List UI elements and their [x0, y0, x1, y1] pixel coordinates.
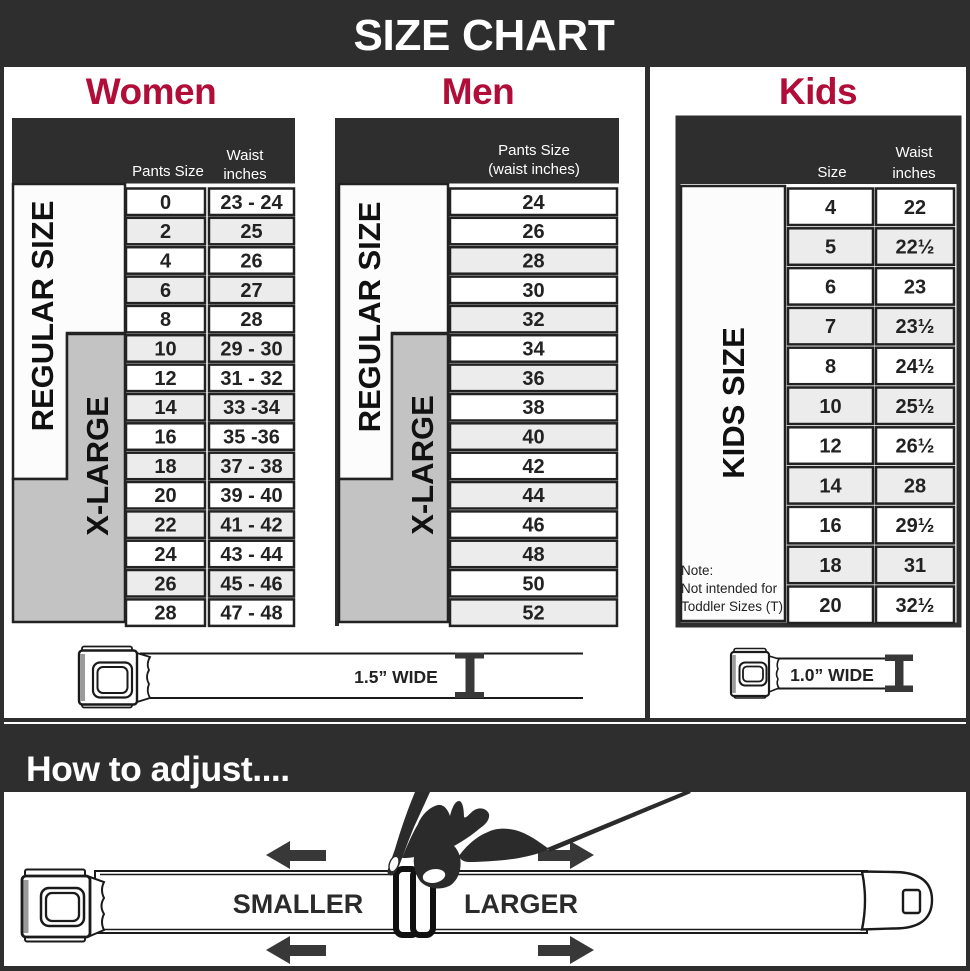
svg-text:24: 24 [154, 544, 177, 566]
svg-text:26: 26 [240, 250, 262, 272]
svg-text:42: 42 [522, 456, 544, 478]
svg-text:24½: 24½ [896, 356, 935, 378]
svg-text:26½: 26½ [896, 436, 935, 458]
svg-text:X-LARGE: X-LARGE [405, 395, 440, 535]
svg-text:39 - 40: 39 - 40 [220, 485, 282, 507]
svg-text:18: 18 [819, 555, 841, 577]
svg-text:23½: 23½ [896, 316, 935, 338]
svg-text:Pants Size: Pants Size [498, 142, 570, 159]
svg-text:4: 4 [160, 250, 172, 272]
svg-text:29 - 30: 29 - 30 [220, 339, 282, 361]
svg-text:22: 22 [904, 197, 926, 219]
svg-text:KIDS SIZE: KIDS SIZE [716, 327, 751, 479]
svg-text:14: 14 [819, 475, 842, 497]
svg-text:24: 24 [522, 192, 545, 214]
svg-text:33 -34: 33 -34 [223, 397, 281, 419]
svg-text:20: 20 [154, 485, 176, 507]
svg-text:38: 38 [522, 397, 544, 419]
svg-text:12: 12 [819, 436, 841, 458]
svg-text:23: 23 [904, 276, 926, 298]
svg-text:23 - 24: 23 - 24 [220, 192, 283, 214]
svg-text:32: 32 [522, 309, 544, 331]
svg-text:Size: Size [817, 164, 846, 181]
svg-text:20: 20 [819, 595, 841, 617]
svg-text:28: 28 [240, 309, 262, 331]
svg-text:14: 14 [154, 397, 177, 419]
svg-text:43 - 44: 43 - 44 [220, 544, 283, 566]
svg-text:4: 4 [825, 197, 837, 219]
svg-text:Men: Men [442, 71, 515, 112]
svg-text:Pants Size: Pants Size [132, 163, 204, 180]
svg-text:22: 22 [154, 515, 176, 537]
svg-text:2: 2 [160, 221, 171, 243]
svg-text:46: 46 [522, 515, 544, 537]
svg-text:inches: inches [223, 166, 266, 183]
svg-text:30: 30 [522, 280, 544, 302]
svg-text:31: 31 [904, 555, 926, 577]
svg-text:47 - 48: 47 - 48 [220, 603, 282, 625]
svg-text:Toddler Sizes (T): Toddler Sizes (T) [681, 599, 783, 614]
svg-text:0: 0 [160, 192, 171, 214]
svg-text:37 - 38: 37 - 38 [220, 456, 282, 478]
svg-text:1.0” WIDE: 1.0” WIDE [790, 665, 874, 685]
svg-text:8: 8 [825, 356, 836, 378]
svg-text:40: 40 [522, 427, 544, 449]
svg-text:X-LARGE: X-LARGE [80, 396, 115, 536]
svg-text:34: 34 [522, 339, 545, 361]
svg-text:How to adjust....: How to adjust.... [26, 749, 290, 789]
svg-text:41 - 42: 41 - 42 [220, 515, 282, 537]
svg-text:35 -36: 35 -36 [223, 427, 280, 449]
svg-text:18: 18 [154, 456, 176, 478]
svg-text:29½: 29½ [896, 515, 935, 537]
svg-text:32½: 32½ [896, 595, 935, 617]
svg-text:1.5” WIDE: 1.5” WIDE [354, 667, 438, 687]
svg-text:Waist: Waist [227, 147, 265, 164]
svg-text:52: 52 [522, 603, 544, 625]
svg-text:Note:: Note: [681, 563, 713, 578]
svg-text:LARGER: LARGER [464, 889, 578, 919]
svg-text:27: 27 [240, 280, 262, 302]
svg-text:6: 6 [160, 280, 171, 302]
svg-text:31 - 32: 31 - 32 [220, 368, 282, 390]
svg-text:7: 7 [825, 316, 836, 338]
svg-text:Kids: Kids [779, 71, 857, 112]
svg-text:SMALLER: SMALLER [233, 889, 364, 919]
svg-text:10: 10 [819, 396, 841, 418]
svg-text:50: 50 [522, 573, 544, 595]
svg-text:48: 48 [522, 544, 544, 566]
svg-text:16: 16 [819, 515, 841, 537]
svg-text:44: 44 [522, 485, 545, 507]
svg-text:45 - 46: 45 - 46 [220, 573, 282, 595]
svg-text:22½: 22½ [896, 237, 935, 259]
svg-text:8: 8 [160, 309, 171, 331]
svg-text:12: 12 [154, 368, 176, 390]
svg-text:36: 36 [522, 368, 544, 390]
svg-text:REGULAR SIZE: REGULAR SIZE [352, 202, 387, 433]
svg-text:inches: inches [892, 165, 935, 182]
svg-text:26: 26 [154, 573, 176, 595]
svg-text:25: 25 [240, 221, 262, 243]
svg-text:Not intended for: Not intended for [681, 581, 778, 596]
svg-text:5: 5 [825, 237, 836, 259]
svg-text:(waist inches): (waist inches) [488, 161, 580, 178]
svg-text:10: 10 [154, 339, 176, 361]
svg-text:REGULAR SIZE: REGULAR SIZE [25, 201, 60, 432]
svg-text:25½: 25½ [896, 396, 935, 418]
svg-text:28: 28 [904, 475, 926, 497]
svg-text:28: 28 [522, 250, 544, 272]
svg-text:28: 28 [154, 603, 176, 625]
svg-text:16: 16 [154, 427, 176, 449]
svg-text:SIZE CHART: SIZE CHART [353, 11, 614, 60]
svg-text:Waist: Waist [896, 144, 934, 161]
svg-text:26: 26 [522, 221, 544, 243]
svg-text:Women: Women [86, 71, 216, 112]
svg-text:6: 6 [825, 276, 836, 298]
